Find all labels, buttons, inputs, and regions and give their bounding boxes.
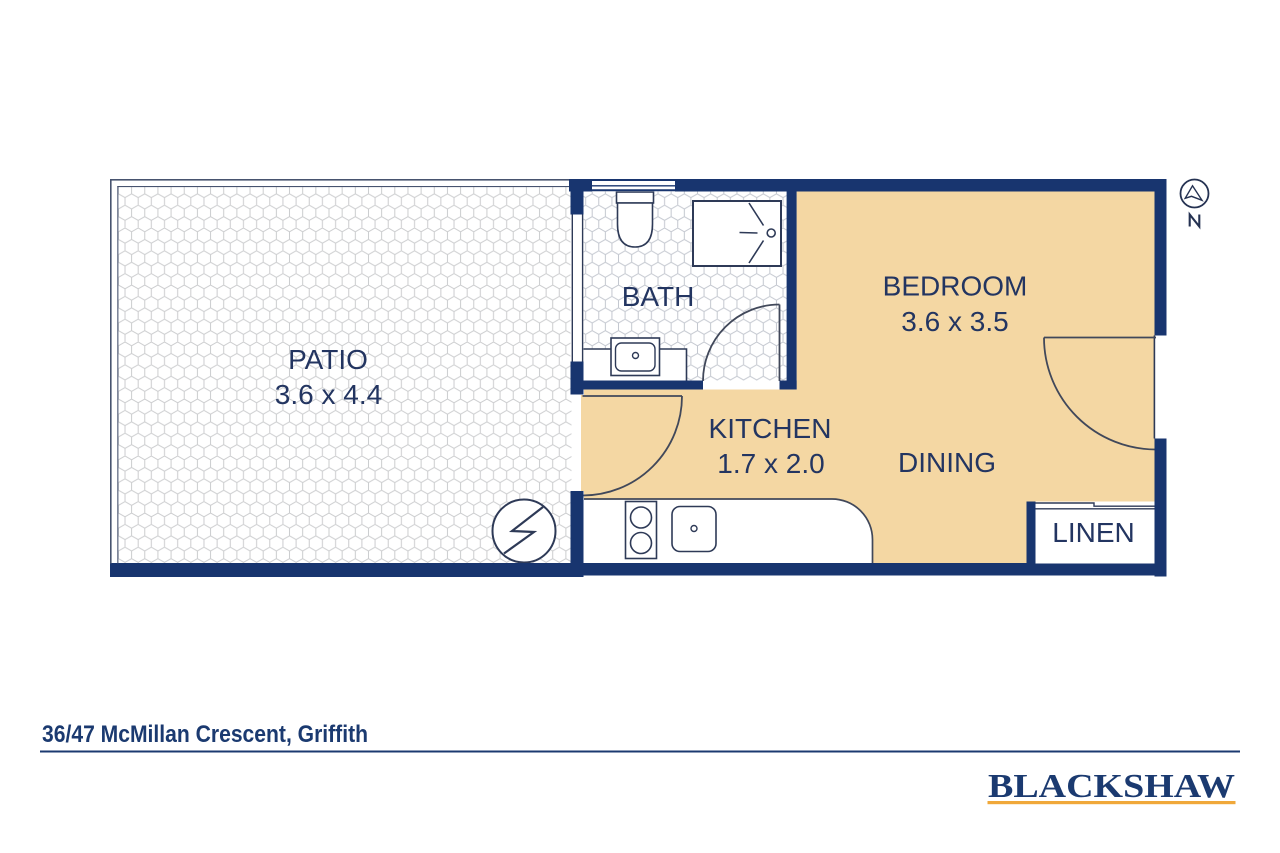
svg-text:BLACKSHAW: BLACKSHAW (988, 768, 1235, 805)
svg-text:36/47 McMillan Crescent, Griff: 36/47 McMillan Crescent, Griffith (42, 721, 368, 748)
svg-text:3.6 x 4.4: 3.6 x 4.4 (275, 379, 382, 410)
svg-text:KITCHEN: KITCHEN (709, 413, 832, 444)
svg-text:PATIO: PATIO (288, 344, 368, 375)
svg-text:3.6 x 3.5: 3.6 x 3.5 (901, 306, 1008, 337)
svg-text:LINEN: LINEN (1052, 517, 1134, 548)
svg-text:1.7 x 2.0: 1.7 x 2.0 (717, 448, 824, 479)
svg-text:BEDROOM: BEDROOM (883, 271, 1028, 302)
svg-text:BATH: BATH (622, 281, 695, 312)
svg-text:DINING: DINING (898, 447, 996, 478)
